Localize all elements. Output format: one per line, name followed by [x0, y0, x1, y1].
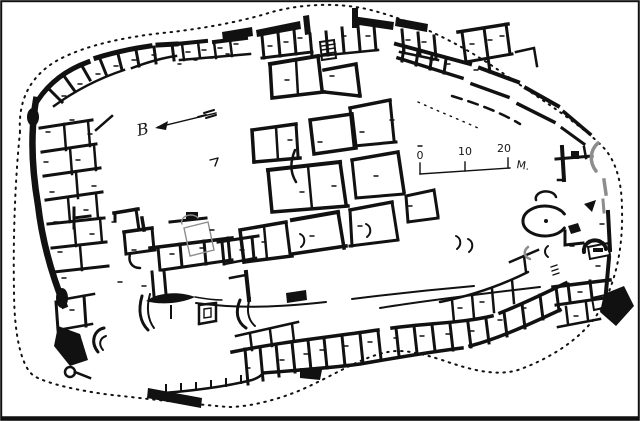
south-room-chain: [232, 250, 566, 384]
site-plan-figure: 0 10 20 M. B: [0, 0, 640, 421]
west-block: [114, 209, 258, 328]
central-block: [210, 56, 438, 262]
scale-unit-label: M.: [516, 158, 531, 173]
scale-label-0: 0: [417, 149, 424, 162]
site-plan-drawing: 0 10 20 M. B: [0, 0, 640, 421]
scale-bar: 0 10 20 M.: [417, 142, 531, 174]
north-ring-rooms: [262, 24, 537, 72]
arrowhead-icon: [155, 121, 168, 130]
northwest-ring-rooms: [50, 40, 250, 106]
scale-label-20: 20: [497, 142, 511, 155]
orientation-arrow: B: [134, 110, 216, 140]
scale-label-10: 10: [458, 145, 472, 158]
west-ring-rooms: [40, 116, 154, 352]
orientation-label: B: [134, 119, 151, 140]
